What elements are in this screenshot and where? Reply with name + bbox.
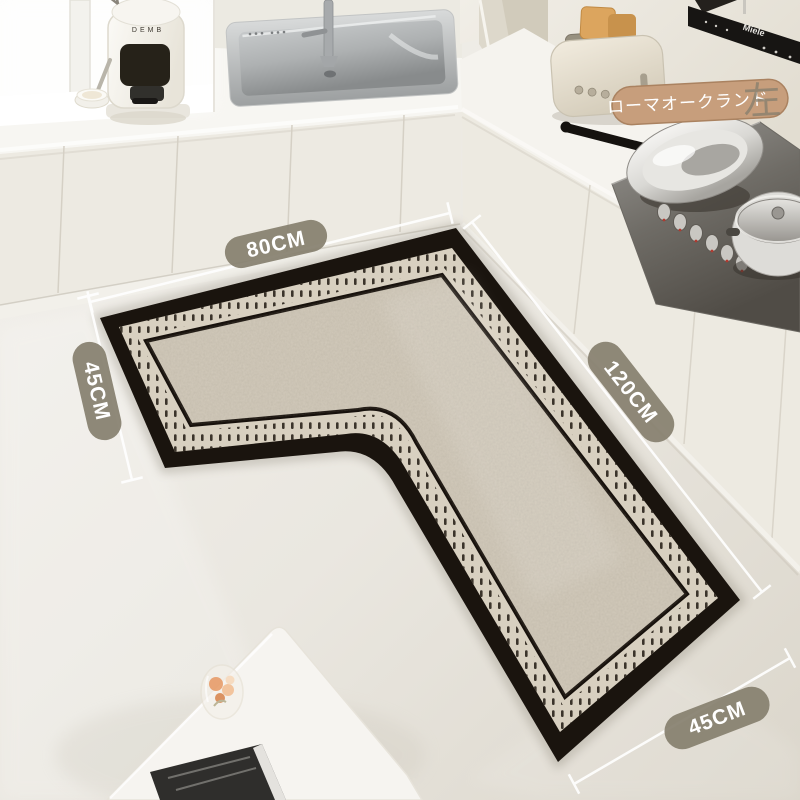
coffee-brand-label: DEMB: [132, 27, 164, 34]
coffee-machine-top: [112, 0, 180, 26]
pot-lid-knob: [772, 207, 784, 219]
coffee-machine: DEMB: [98, 0, 190, 125]
kitchen-scene: DEMB: [0, 0, 800, 800]
flower-vase: [201, 665, 243, 719]
coffee-cup: [75, 89, 109, 108]
kitchen-photo: DEMB: [0, 0, 800, 800]
coffee-foam: [82, 91, 102, 99]
sink-drain: [324, 71, 336, 78]
product-tag-side: 左: [742, 80, 782, 124]
hood-rod: [743, 0, 746, 14]
pot-handle: [726, 228, 740, 236]
window-frame: [70, 0, 90, 96]
portafilter-handle: [132, 98, 158, 104]
coffee-machine-shadow: [110, 111, 186, 125]
sink: [226, 9, 459, 107]
coffee-machine-panel: [120, 44, 170, 86]
